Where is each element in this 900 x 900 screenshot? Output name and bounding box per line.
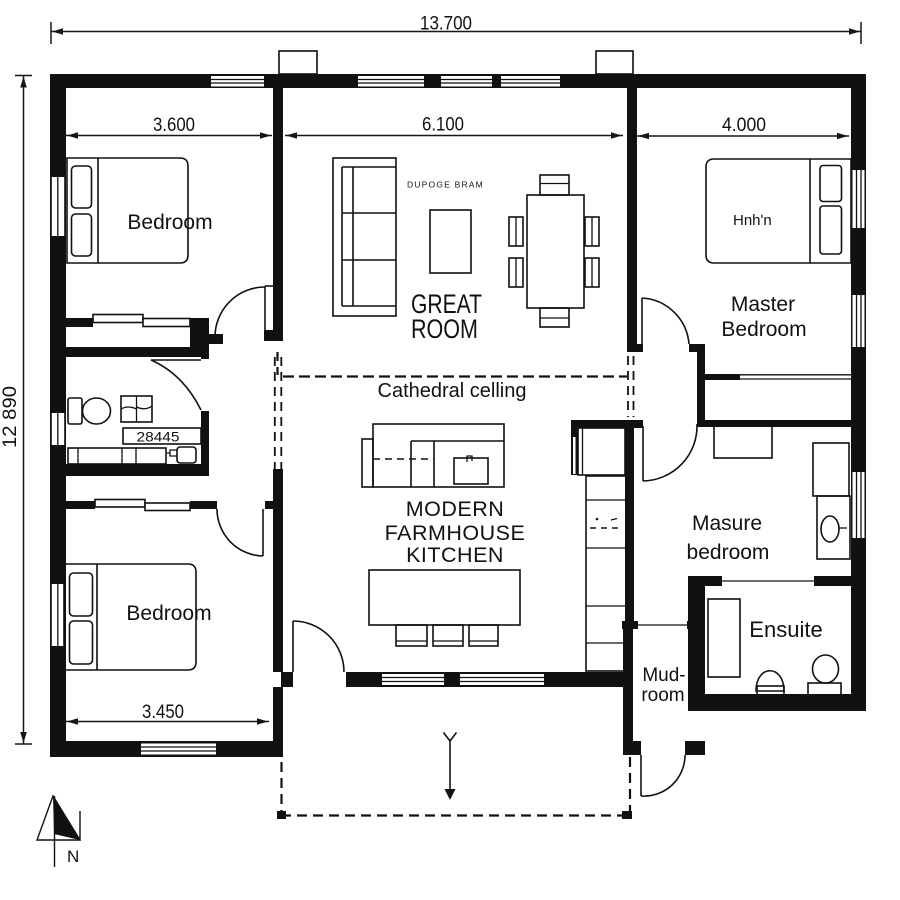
- svg-text:ROOM: ROOM: [411, 314, 478, 344]
- svg-text:Hnhʹn: Hnhʹn: [733, 212, 772, 229]
- svg-text:FARMHOUSE: FARMHOUSE: [385, 521, 526, 545]
- svg-text:MODERN: MODERN: [406, 497, 505, 521]
- svg-text:bedroom: bedroom: [687, 541, 770, 564]
- svg-text:room: room: [641, 685, 684, 706]
- svg-text:4.000: 4.000: [722, 115, 766, 136]
- svg-text:DUPOGE BRAM: DUPOGE BRAM: [407, 180, 484, 190]
- svg-text:Bedroom: Bedroom: [721, 318, 806, 341]
- svg-text:13.700: 13.700: [420, 14, 472, 35]
- svg-text:Master: Master: [731, 293, 795, 316]
- svg-text:Bedroom: Bedroom: [126, 602, 211, 625]
- svg-text:Mud-: Mud-: [642, 665, 685, 686]
- svg-text:3.450: 3.450: [142, 702, 184, 723]
- svg-text:Ensuite: Ensuite: [749, 617, 822, 642]
- svg-text:3.600: 3.600: [153, 115, 195, 136]
- svg-text:6.100: 6.100: [422, 115, 464, 136]
- svg-text:Bedroom: Bedroom: [127, 211, 212, 234]
- svg-text:KITCHEN: KITCHEN: [406, 543, 504, 567]
- svg-text:N: N: [67, 847, 79, 866]
- svg-text:Masure: Masure: [692, 512, 762, 535]
- svg-text:12 890: 12 890: [0, 386, 21, 448]
- svg-text:28445: 28445: [137, 429, 180, 445]
- svg-text:Cathedral celling: Cathedral celling: [378, 380, 527, 402]
